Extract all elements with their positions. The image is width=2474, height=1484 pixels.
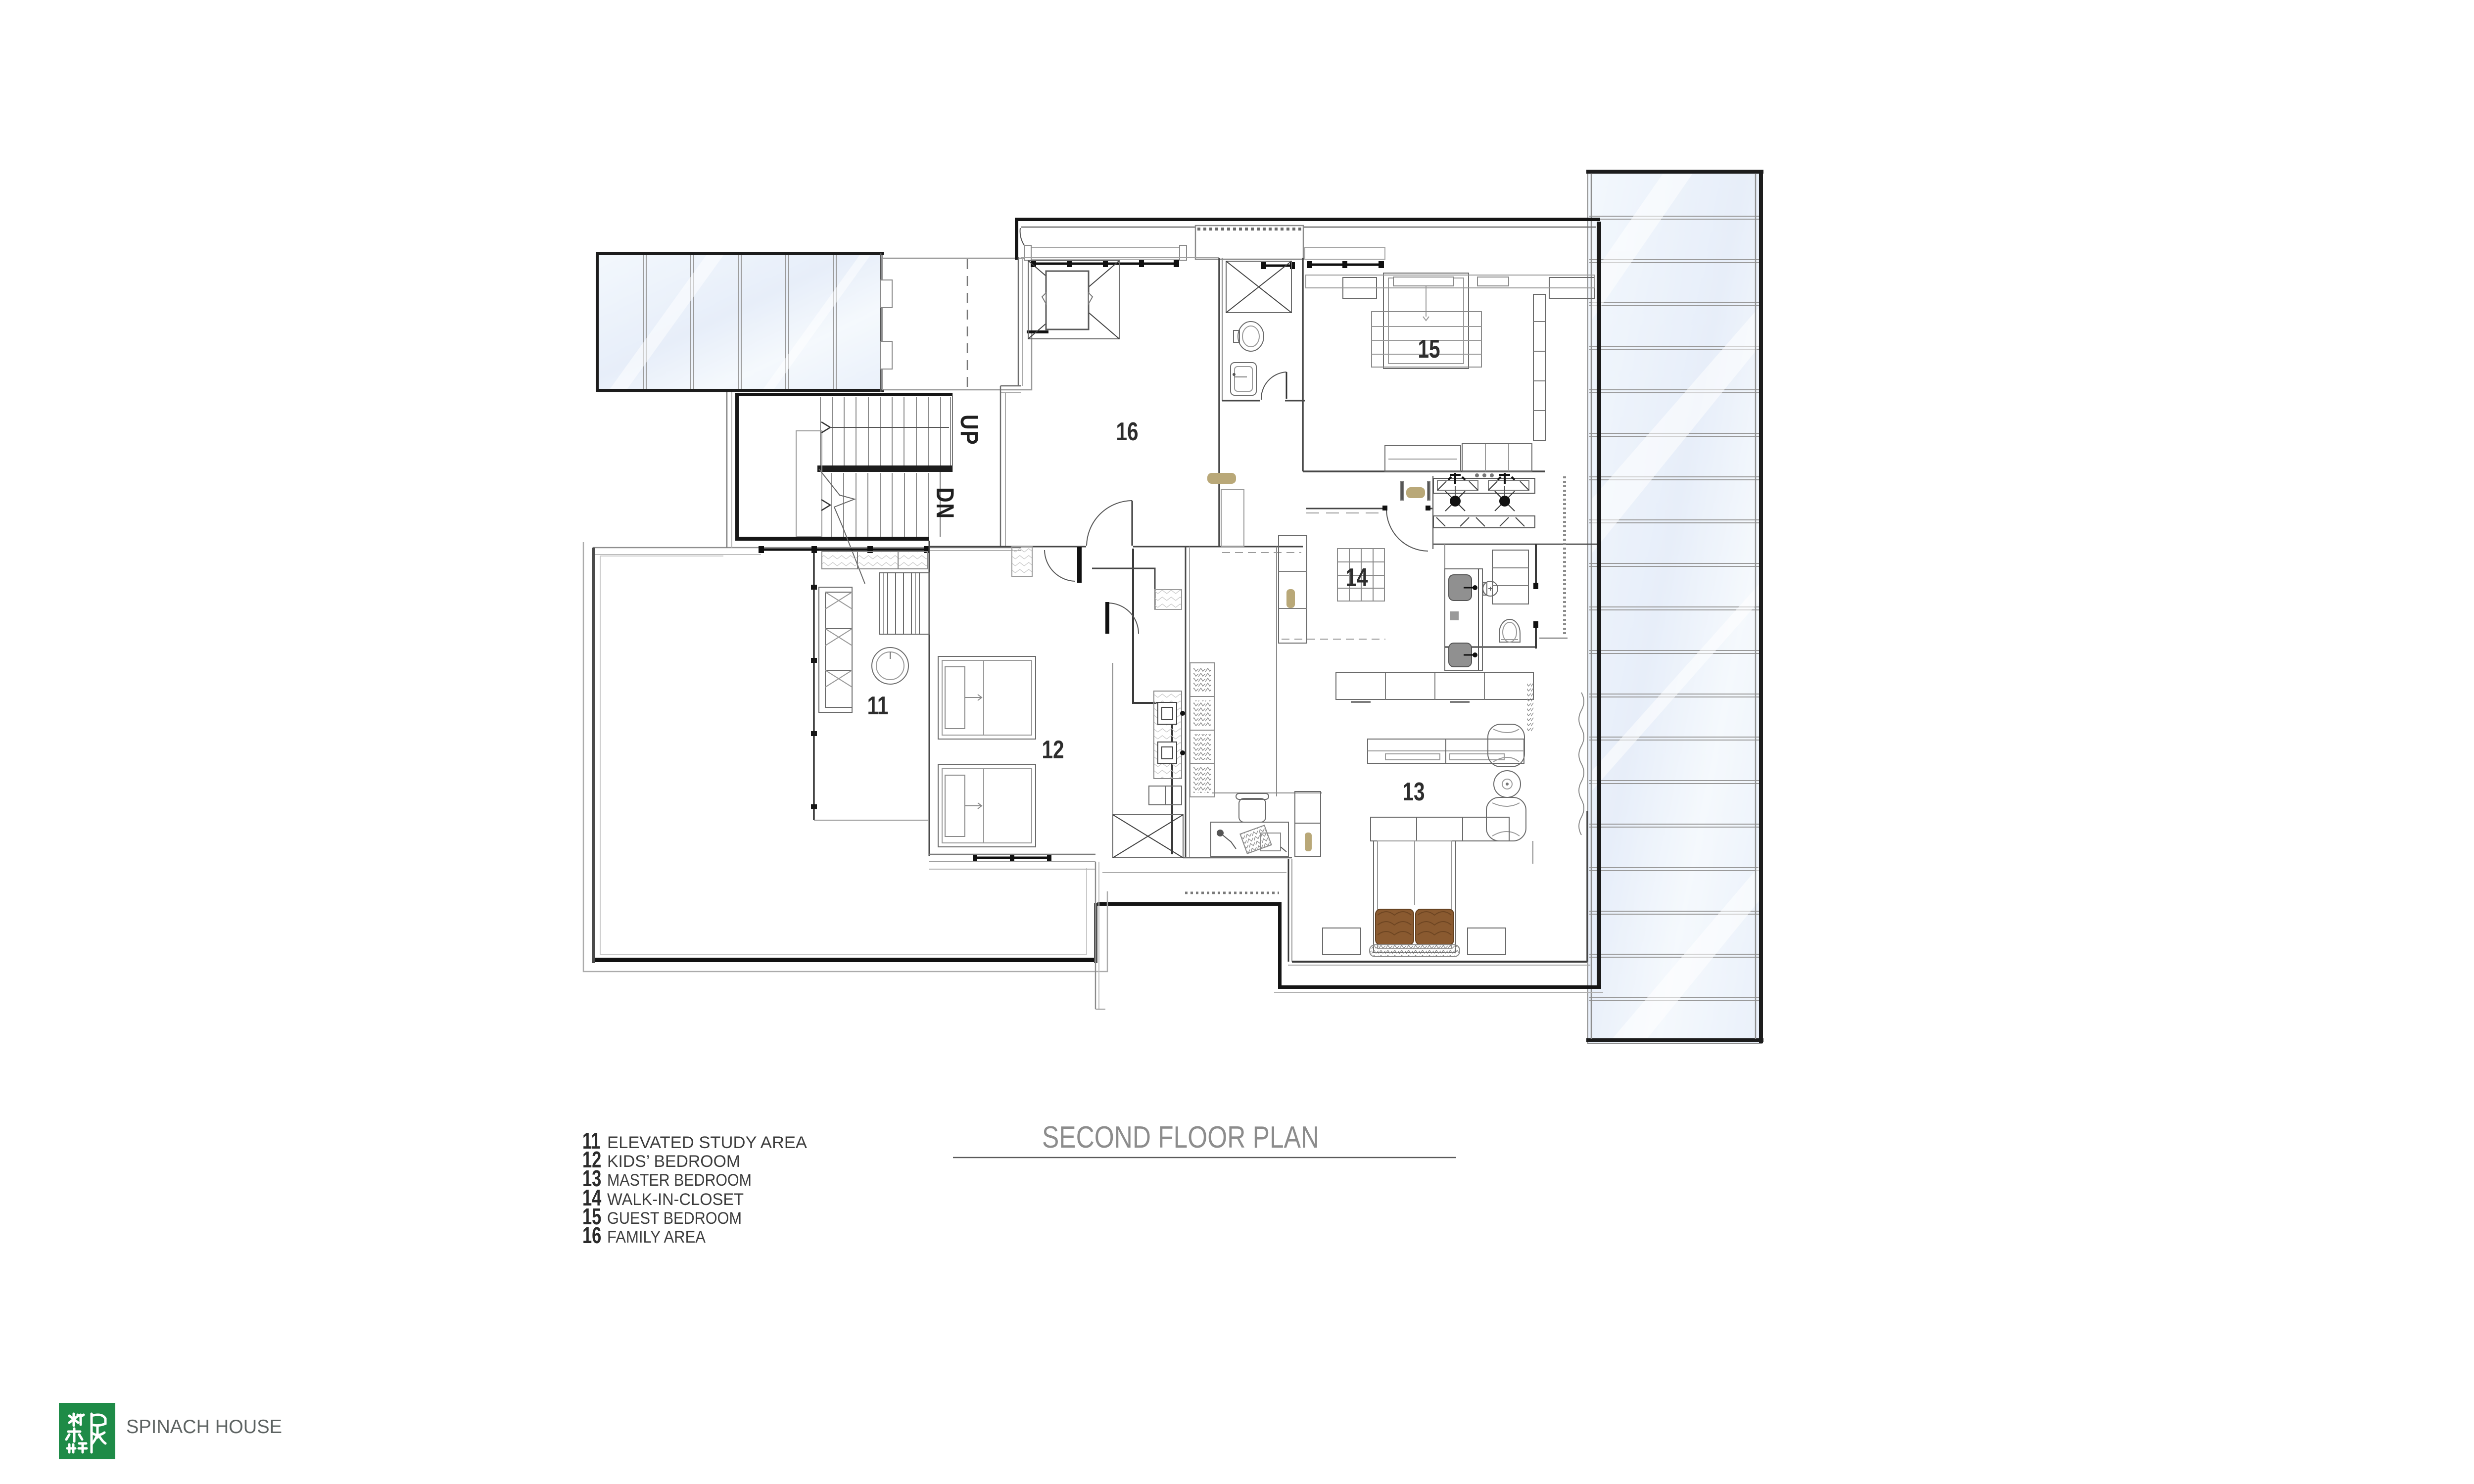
- svg-text:MASTER BEDROOM: MASTER BEDROOM: [607, 1171, 752, 1190]
- svg-text:GUEST BEDROOM: GUEST BEDROOM: [607, 1209, 742, 1228]
- svg-text:FAMILY AREA: FAMILY AREA: [607, 1228, 706, 1247]
- svg-text:16: 16: [1116, 417, 1138, 446]
- svg-text:11: 11: [867, 691, 889, 720]
- svg-text:12: 12: [1042, 735, 1064, 764]
- svg-text:15: 15: [1418, 334, 1440, 363]
- svg-text:ELEVATED STUDY AREA: ELEVATED STUDY AREA: [607, 1133, 807, 1152]
- svg-text:14: 14: [1345, 563, 1368, 592]
- svg-text:13: 13: [1402, 777, 1425, 806]
- svg-text:SECOND FLOOR PLAN: SECOND FLOOR PLAN: [1042, 1120, 1319, 1155]
- svg-text:16: 16: [582, 1222, 601, 1248]
- svg-text:KIDS’ BEDROOM: KIDS’ BEDROOM: [607, 1152, 740, 1171]
- svg-text:WALK-IN-CLOSET: WALK-IN-CLOSET: [607, 1190, 744, 1209]
- svg-text:SPINACH HOUSE: SPINACH HOUSE: [126, 1416, 282, 1438]
- svg-text:DN: DN: [931, 487, 959, 519]
- svg-text:UP: UP: [955, 415, 983, 445]
